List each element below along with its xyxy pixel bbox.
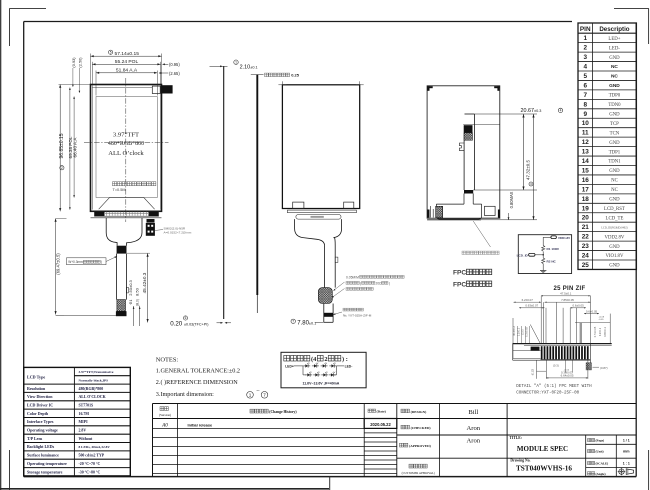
svg-text:PIN: PIN	[580, 26, 591, 33]
svg-text:(2.50): (2.50)	[78, 57, 83, 68]
svg-text:Φ1: Φ1	[129, 300, 133, 305]
svg-text:A0: A0	[161, 423, 168, 429]
svg-text:1: 1	[583, 35, 587, 42]
svg-text:TITLE:: TITLE:	[509, 436, 522, 440]
svg-text:NC: NC	[611, 74, 618, 80]
svg-text:LED+: LED+	[285, 364, 294, 368]
svg-text:8 LEDs, 40mA,32.8V: 8 LEDs, 40mA,32.8V	[79, 445, 111, 449]
svg-text:Interface Types: Interface Types	[27, 419, 54, 424]
svg-text:(CUSTOMER APPROVAL): (CUSTOMER APPROVAL)	[402, 471, 435, 475]
svg-text:2: 2	[324, 356, 327, 363]
svg-text:Without: Without	[79, 437, 93, 441]
svg-text:6.64±0.05: 6.64±0.05	[561, 374, 574, 378]
svg-text:1.GENERAL TOLERANCE:±0.2: 1.GENERAL TOLERANCE:±0.2	[156, 367, 240, 374]
svg-text:R1 100R: R1 100R	[547, 247, 560, 251]
svg-text:(CHECKED): (CHECKED)	[411, 426, 432, 430]
svg-text:LCD_TE: LCD_TE	[606, 216, 624, 221]
svg-text:4: 4	[560, 109, 562, 113]
svg-text:GND: GND	[609, 264, 620, 269]
svg-text:7: 7	[583, 92, 587, 99]
svg-text:TCN: TCN	[610, 131, 620, 136]
svg-text:0.05M/M: 0.05M/M	[346, 275, 359, 279]
svg-text:Color Depth: Color Depth	[27, 411, 49, 416]
svg-text:3.Important dimension:: 3.Important dimension:	[156, 391, 214, 398]
svg-text:(Unit): (Unit)	[595, 450, 603, 454]
svg-text:47.32±0.5: 47.32±0.5	[525, 160, 530, 180]
svg-text:LED-: LED-	[345, 364, 353, 368]
svg-text:23: 23	[582, 243, 590, 250]
svg-text:24: 24	[582, 253, 590, 260]
svg-text:Backlight LEDs: Backlight LEDs	[27, 444, 55, 449]
svg-text:3.97”TFT,Transmissive: 3.97”TFT,Transmissive	[79, 370, 114, 374]
svg-text:CONNECTOR:YXT-0F20-25F-00: CONNECTOR:YXT-0F20-25F-00	[516, 392, 579, 396]
svg-text:480(RGB)*800: 480(RGB)*800	[79, 387, 104, 391]
svg-text:Resolution: Resolution	[27, 386, 46, 391]
svg-text:): )	[389, 281, 390, 285]
svg-text:(Page): (Page)	[595, 439, 604, 443]
svg-text:LED-: LED-	[609, 46, 620, 51]
svg-text:mm: mm	[623, 450, 630, 454]
svg-text:T/P Lens: T/P Lens	[27, 436, 43, 441]
svg-text:TST040WVHS-16: TST040WVHS-16	[516, 465, 572, 473]
svg-text:47.5±0.1: 47.5±0.1	[560, 292, 572, 296]
svg-text:1 / 1: 1 / 1	[623, 439, 630, 443]
svg-text:(Change History): (Change History)	[269, 410, 297, 414]
svg-text:7: 7	[292, 319, 294, 323]
svg-text:1.1±0.1: 1.1±0.1	[517, 327, 520, 336]
svg-text:11.6V~13.6V ,IF=40mA: 11.6V~13.6V ,IF=40mA	[303, 381, 340, 385]
svg-text:Drawing No.: Drawing No.	[510, 459, 530, 463]
svg-text:9: 9	[583, 111, 587, 118]
svg-text:1: 1	[249, 392, 252, 397]
svg-text:(0.87): (0.87)	[600, 366, 608, 370]
svg-text:LCD_ID(NC&ID:0402): LCD_ID(NC&ID:0402)	[601, 226, 627, 229]
svg-text:GND: GND	[609, 198, 620, 203]
svg-text:±0.3: ±0.3	[534, 109, 541, 113]
svg-text:10: 10	[582, 120, 590, 127]
svg-text:±0.03(TFC+PI): ±0.03(TFC+PI)	[184, 323, 208, 327]
svg-text:(4: (4	[311, 356, 317, 363]
svg-text:GND: GND	[609, 245, 620, 250]
svg-text:0.74·0.05: 0.74·0.05	[594, 326, 597, 337]
svg-text:55.24 POL: 55.24 POL	[115, 59, 139, 65]
svg-text:16.7M: 16.7M	[79, 412, 90, 416]
svg-text:19: 19	[582, 205, 590, 212]
svg-text:0.25: 0.25	[291, 73, 300, 78]
svg-text:ST7701S: ST7701S	[79, 403, 94, 407]
svg-text:6: 6	[185, 316, 187, 320]
svg-text:A=0.0152<7.2Ω/mm: A=0.0152<7.2Ω/mm	[164, 231, 192, 235]
svg-text:W+0.3mm(: W+0.3mm(	[68, 260, 85, 264]
svg-text:(69.47±0.5): (69.47±0.5)	[55, 253, 60, 275]
svg-text:LCD Type: LCD Type	[27, 375, 45, 380]
svg-text:0.80MAX: 0.80MAX	[509, 191, 514, 208]
svg-text:Operating temperature: Operating temperature	[27, 461, 67, 466]
svg-text:66.40 A.A: 66.40 A.A	[73, 137, 78, 158]
svg-text:2: 2	[583, 45, 587, 52]
svg-text:-20 °C~70 °C: -20 °C~70 °C	[79, 462, 101, 466]
svg-text:1: 1	[235, 60, 237, 64]
svg-text:(0.13): (0.13)	[532, 369, 535, 376]
svg-text:(APPROVED): (APPROVED)	[409, 444, 432, 448]
svg-text:8: 8	[583, 101, 587, 108]
svg-text:5: 5	[110, 50, 112, 54]
svg-text:18: 18	[582, 196, 590, 203]
svg-text:6: 6	[583, 82, 587, 89]
svg-text:(0.93): (0.93)	[71, 57, 76, 68]
svg-text:3: 3	[583, 54, 587, 61]
svg-text:VDD1.8V: VDD1.8V	[558, 236, 570, 240]
svg-text:TCP: TCP	[610, 122, 619, 127]
svg-text:(0.3): (0.3)	[553, 363, 559, 367]
svg-text:7: 7	[263, 392, 266, 397]
svg-text:R2 NC: R2 NC	[547, 259, 557, 263]
svg-text:12: 12	[582, 139, 590, 146]
svg-text:NOTES:: NOTES:	[156, 357, 179, 364]
svg-text:№, YXT-025A-ZIF-M: №, YXT-025A-ZIF-M	[343, 313, 372, 317]
svg-text:GND: GND	[609, 83, 620, 89]
svg-text:GND: GND	[609, 169, 620, 174]
svg-text:GND: GND	[609, 141, 620, 146]
svg-text:(Angle): (Angle)	[595, 472, 605, 476]
svg-text:TDP1: TDP1	[609, 150, 621, 155]
svg-text:±0.1: ±0.1	[250, 65, 257, 69]
svg-text:NC: NC	[611, 179, 618, 184]
svg-text:(Version): (Version)	[159, 413, 171, 417]
svg-text:20Ω: 20Ω	[376, 281, 383, 285]
svg-text:20.67: 20.67	[521, 108, 535, 114]
svg-text:17: 17	[582, 186, 590, 193]
svg-text:-30 °C~80 °C: -30 °C~80 °C	[79, 470, 101, 474]
svg-text:3.97”TFT: 3.97”TFT	[113, 132, 139, 139]
svg-text:ALL O’clock: ALL O’clock	[108, 150, 144, 157]
svg-text:±0.1: ±0.1	[309, 321, 316, 325]
svg-text:LCD_RST: LCD_RST	[604, 207, 625, 212]
svg-text:45.3±0.3: 45.3±0.3	[513, 326, 516, 336]
svg-text:DETAIL "A" (5:1) FPC MEET WITH: DETAIL "A" (5:1) FPC MEET WITH	[516, 384, 592, 389]
svg-text:NC: NC	[611, 64, 618, 70]
svg-text:NC: NC	[611, 188, 618, 193]
svg-text:2.10: 2.10	[240, 64, 251, 70]
svg-text:2: 2	[61, 166, 63, 170]
svg-text:VDD2.8V: VDD2.8V	[605, 235, 625, 240]
svg-text:6.2±0.07: 6.2±0.07	[522, 298, 534, 302]
svg-text:T=0.5M: T=0.5M	[113, 188, 126, 192]
svg-text:22: 22	[582, 234, 590, 241]
svg-text:(1.0): (1.0)	[521, 329, 524, 334]
svg-text:LED+: LED+	[608, 37, 620, 42]
svg-text:7.80: 7.80	[297, 320, 309, 326]
svg-text:-0.05: -0.05	[599, 319, 605, 321]
svg-text:0.63±0.07: 0.63±0.07	[525, 304, 538, 308]
svg-text:Bill: Bill	[468, 409, 478, 416]
svg-text:480*RGB*800: 480*RGB*800	[108, 141, 144, 147]
svg-text:21: 21	[582, 224, 590, 231]
svg-text:2.( )REFERENCE DIMENSION: 2.( )REFERENCE DIMENSION	[156, 379, 239, 386]
svg-text:Aron: Aron	[467, 438, 481, 445]
svg-text:MIPI: MIPI	[79, 420, 89, 424]
svg-text:0.6+0.05: 0.6+0.05	[586, 309, 598, 313]
svg-text:15: 15	[582, 167, 590, 174]
svg-text:MODULE SPEC: MODULE SPEC	[517, 445, 568, 453]
svg-text:500 cd/m2 TYP: 500 cd/m2 TYP	[79, 454, 105, 458]
svg-text:0.6±0.05: 0.6±0.05	[572, 304, 584, 308]
svg-text:(Date): (Date)	[376, 409, 386, 413]
svg-text:TDP0: TDP0	[609, 94, 621, 99]
svg-text:GND: GND	[609, 56, 620, 61]
svg-text:2.8V: 2.8V	[79, 429, 87, 433]
svg-text:25: 25	[582, 262, 590, 269]
svg-text:0.3±0.05: 0.3±0.05	[525, 327, 528, 337]
svg-text:45.42±0.3: 45.42±0.3	[142, 272, 147, 293]
svg-text:Surface luminance: Surface luminance	[27, 453, 59, 458]
svg-text:FPC: FPC	[453, 281, 466, 288]
svg-text:0.20: 0.20	[170, 321, 183, 328]
svg-text:(8.0): (8.0)	[136, 299, 140, 306]
svg-text:8.50: 8.50	[135, 287, 140, 296]
svg-text:TDN1: TDN1	[608, 160, 621, 165]
svg-text:5: 5	[583, 73, 587, 80]
svg-text:LCD Driver IC: LCD Driver IC	[27, 402, 53, 407]
svg-text:LCD_ID: LCD_ID	[517, 254, 529, 258]
svg-text:Normally black,IPS: Normally black,IPS	[79, 378, 109, 382]
svg-text:57.14±0.15: 57.14±0.15	[115, 51, 140, 57]
svg-text:51.84 A.A: 51.84 A.A	[116, 67, 138, 73]
svg-text:(DESIGN): (DESIGN)	[411, 410, 428, 414]
svg-text:13: 13	[582, 149, 590, 156]
svg-text:3.2±0.1: 3.2±0.1	[599, 327, 602, 336]
svg-text:1 : 1: 1 : 1	[623, 462, 630, 466]
svg-text:~: ~	[257, 388, 260, 394]
svg-text:) :: ) :	[342, 356, 348, 363]
svg-text:Aron: Aron	[467, 425, 481, 432]
svg-text:16: 16	[582, 177, 590, 184]
svg-text:VIO1.8V: VIO1.8V	[605, 254, 624, 259]
svg-text:Storage temperature: Storage temperature	[27, 469, 63, 474]
svg-text:2020.05.22: 2020.05.22	[370, 422, 391, 427]
svg-text:Initial release: Initial release	[188, 423, 213, 428]
svg-text:20: 20	[582, 215, 590, 222]
svg-text:3.65±0.1: 3.65±0.1	[604, 327, 607, 337]
svg-text:View Direction: View Direction	[27, 394, 53, 399]
svg-text:2.50±0.3: 2.50±0.3	[128, 279, 133, 295]
svg-text:ALL O'CLOCK: ALL O'CLOCK	[79, 395, 106, 399]
svg-text:): )	[101, 260, 102, 264]
svg-text:Operating voltage: Operating voltage	[27, 428, 58, 433]
svg-text:11: 11	[582, 130, 589, 137]
svg-text:7.85±0.05: 7.85±0.05	[561, 298, 574, 302]
svg-text:TDN0: TDN0	[608, 103, 621, 108]
svg-text:Descriptio: Descriptio	[599, 26, 629, 33]
svg-text:(SCALE): (SCALE)	[595, 462, 608, 466]
svg-text:FPC: FPC	[453, 270, 466, 277]
svg-text:14: 14	[582, 158, 590, 165]
svg-text:(0.95): (0.95)	[169, 62, 180, 67]
svg-text:4: 4	[583, 64, 587, 71]
svg-text:GND: GND	[609, 112, 620, 117]
svg-text:(2.65): (2.65)	[169, 71, 180, 76]
